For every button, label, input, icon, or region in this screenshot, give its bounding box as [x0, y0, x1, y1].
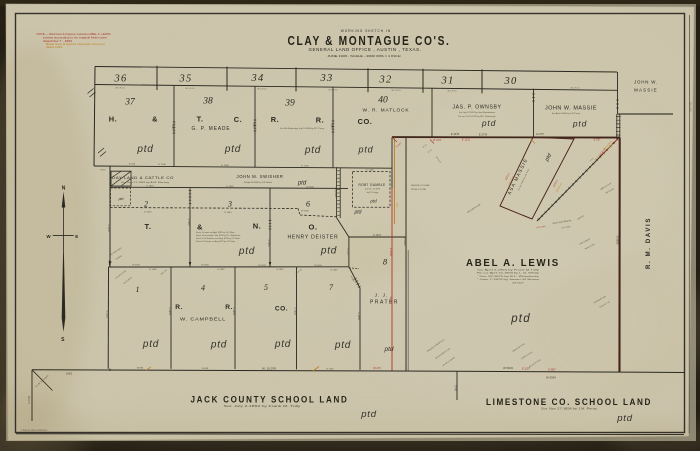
- svg-text:E 1543: E 1543: [373, 234, 381, 237]
- svg-text:E. 1906: E. 1906: [158, 164, 166, 166]
- svg-text:” June 7-1879 by James W Brow: ” June 7-1879 by James W Brown: [477, 278, 540, 281]
- svg-text:H.: H.: [109, 114, 117, 123]
- svg-text:E. 906: E. 906: [129, 164, 136, 166]
- svg-text:FROM CO LINE: FROM CO LINE: [411, 189, 427, 191]
- svg-text:E 1492: E 1492: [277, 269, 285, 271]
- svg-text:W 893: W 893: [202, 368, 209, 370]
- svg-text:Sur Dec 27-1879: Sur Dec 27-1879: [365, 189, 381, 191]
- svg-text:T.: T.: [197, 114, 204, 123]
- svg-text:W. 1 9 0 0: W. 1 9 0 0: [570, 88, 580, 90]
- svg-text:1212: 1212: [396, 203, 398, 209]
- svg-text:34: 34: [251, 73, 265, 84]
- svg-text:33: 33: [320, 73, 334, 84]
- svg-text:CO.: CO.: [358, 117, 373, 126]
- svg-text:W.74: W.74: [101, 170, 107, 172]
- svg-text:” Dec 29-1875 by R.L. Wheeloc: ” Dec 29-1875 by R.L. Wheelocke: [477, 276, 540, 278]
- svg-text:W 1500: W 1500: [306, 187, 314, 189]
- svg-text:S 1300: S 1300: [267, 240, 269, 248]
- svg-text:E 1300: E 1300: [225, 212, 233, 214]
- svg-text:ptd: ptd: [510, 313, 531, 325]
- svg-text:N 5550: N 5550: [403, 236, 407, 245]
- svg-text:T.: T.: [145, 222, 152, 231]
- svg-text:W 5003: W 5003: [503, 366, 513, 370]
- svg-text:E 1435: E 1435: [327, 369, 335, 371]
- svg-text:E 1492: E 1492: [218, 269, 226, 271]
- svg-text:3: 3: [227, 199, 232, 208]
- svg-text:E 1300: E 1300: [147, 186, 155, 188]
- svg-text:E 1212: E 1212: [462, 138, 471, 142]
- svg-text:5: 5: [264, 283, 268, 292]
- svg-text:Sur April 4-1860 by J.M. Penry: Sur April 4-1860 by J.M. Penry: [552, 112, 581, 115]
- svg-text:35: 35: [179, 74, 193, 85]
- svg-text:W 473: W 473: [373, 366, 381, 370]
- svg-text:Sur April 5-1853 by Frank M Tu: Sur April 5-1853 by Frank M Tully: [477, 268, 541, 271]
- svg-text:W 1493: W 1493: [258, 265, 266, 267]
- svg-text:W 893: W 893: [137, 368, 144, 370]
- svg-text:Sects 1-6 were sur April 1887: Sects 1-6 were sur April 1887 by L.B. Wh…: [196, 231, 235, 234]
- svg-text:E 4478: E 4478: [451, 132, 460, 136]
- svg-text:ABEL A. LEWIS: ABEL A. LEWIS: [466, 258, 560, 269]
- svg-text:N 2655: N 2655: [105, 310, 108, 318]
- svg-text:R.: R.: [225, 304, 233, 311]
- svg-text:NOTE — Red lines & Figures rep: NOTE — Red lines & Figures represent ABE…: [37, 32, 111, 36]
- svg-text:E 937: E 937: [594, 138, 601, 142]
- svg-text:39: 39: [284, 99, 295, 109]
- svg-text:W. 1 9 0 0: W. 1 9 0 0: [391, 90, 401, 92]
- svg-text:W. CAMPBELL: W. CAMPBELL: [180, 316, 226, 321]
- svg-text:N.: N.: [253, 222, 262, 231]
- svg-text:ptd: ptd: [369, 199, 377, 204]
- svg-text:W 1500: W 1500: [132, 264, 140, 266]
- svg-text:ROBT GAMBLE: ROBT GAMBLE: [359, 183, 386, 187]
- svg-text:R. M. DAVIS: R. M. DAVIS: [645, 217, 652, 269]
- svg-text:ptd: ptd: [572, 119, 587, 129]
- svg-text:W 1300: W 1300: [301, 211, 309, 213]
- svg-text:W. 1 9 0 0: W. 1 9 0 0: [257, 89, 267, 91]
- svg-text:W. R. MATLOCK: W. R. MATLOCK: [363, 108, 410, 113]
- svg-text:S 2655: S 2655: [168, 307, 171, 315]
- svg-text:JOHN M. SWISHER: JOHN M. SWISHER: [237, 174, 284, 179]
- svg-text:Sur 4th Wednesday July 29-1886: Sur 4th Wednesday July 29-1886 by W.T. P…: [280, 127, 325, 130]
- svg-text:ptd: ptd: [320, 246, 337, 257]
- svg-text:Sur. July 2-1860 by Frank M. T: Sur. July 2-1860 by Frank M. Tully: [224, 404, 302, 408]
- svg-text:ptd: ptd: [360, 409, 377, 420]
- svg-text:S 745: S 745: [454, 385, 456, 392]
- svg-text:ptd: ptd: [481, 118, 496, 128]
- svg-text:dated 1933.: dated 1933.: [46, 45, 63, 49]
- svg-text:S 5550: S 5550: [616, 236, 620, 245]
- svg-text:E 2778: E 2778: [536, 134, 544, 136]
- svg-text:ptd: ptd: [297, 181, 307, 187]
- svg-text:Sects 5,6 Deister sur Aug 1879: Sects 5,6 Deister sur Aug 1879 by J.P. E…: [196, 240, 236, 243]
- svg-text:by P.S. Hagy: by P.S. Hagy: [367, 192, 378, 194]
- svg-text:ptd: ptd: [118, 197, 124, 201]
- svg-text:JOHN W.: JOHN W.: [634, 80, 658, 85]
- svg-text:ptd: ptd: [304, 145, 321, 156]
- svg-text:E 2778: E 2778: [479, 132, 488, 136]
- svg-text:Sects 1-6 november July 1879 b: Sects 1-6 november July 1879 by R.L. Whe…: [196, 234, 241, 237]
- svg-text:1415: 1415: [66, 371, 73, 375]
- svg-text:J. Barnes Giles Draftsman: J. Barnes Giles Draftsman: [21, 429, 49, 432]
- svg-text:31: 31: [441, 76, 455, 87]
- svg-text:J. J.: J. J.: [375, 293, 388, 298]
- svg-text:JUNE 1933 - SCALE - 2000 VRS =: JUNE 1933 - SCALE - 2000 VRS = 1 INCH: [328, 54, 401, 58]
- svg-text:C.: C.: [234, 115, 242, 124]
- svg-text:Sur July 21-1881 by A.M. Macke: Sur July 21-1881 by A.M. Mackey: [121, 181, 169, 184]
- svg-text:38: 38: [202, 97, 213, 107]
- svg-text:JACK COUNTY SCHOOL LAND: JACK COUNTY SCHOOL LAND: [191, 395, 349, 406]
- svg-text:&: &: [197, 223, 203, 232]
- svg-text:W. 1 9 0 0: W. 1 9 0 0: [447, 91, 457, 93]
- svg-text:18 x 31½: 18 x 31½: [689, 102, 693, 113]
- svg-text:CLAY & MONTAGUE CO'S.: CLAY & MONTAGUE CO'S.: [288, 34, 451, 48]
- svg-text:MASSIE: MASSIE: [634, 88, 658, 93]
- svg-text:CO.: CO.: [275, 305, 288, 312]
- svg-text:R.: R.: [175, 304, 183, 311]
- svg-text:Re-sur April 10-1869 by L. B.: Re-sur April 10-1869 by L. B. Whitty: [477, 272, 541, 275]
- svg-text:ptd: ptd: [616, 413, 633, 424]
- svg-text:W 453: W 453: [389, 297, 391, 304]
- svg-text:S 2740: S 2740: [27, 395, 31, 404]
- svg-text:S 1300: S 1300: [107, 224, 110, 232]
- svg-text:ptd: ptd: [238, 246, 255, 257]
- svg-text:4: 4: [201, 284, 205, 293]
- svg-text:30: 30: [504, 76, 518, 87]
- svg-text:E 1493: E 1493: [331, 269, 339, 271]
- svg-text:E. 1900: E. 1900: [221, 165, 229, 167]
- svg-text:GENERAL LAND OFFICE , AUSTIN ,: GENERAL LAND OFFICE , AUSTIN , TEXAS.: [309, 47, 422, 52]
- svg-text:W. 1 9 0 0: W. 1 9 0 0: [185, 88, 195, 90]
- svg-text:32: 32: [379, 75, 393, 86]
- svg-text:ptd: ptd: [334, 340, 351, 351]
- svg-text:2655: 2655: [171, 125, 173, 131]
- svg-text:ptd: ptd: [354, 210, 362, 216]
- svg-text:S 1177: S 1177: [346, 248, 348, 256]
- svg-text:E 2013: E 2013: [145, 212, 153, 214]
- svg-text:ptd: ptd: [210, 340, 227, 351]
- svg-text:2: 2: [144, 199, 148, 208]
- svg-text:Sur. Nov 27-1854 by J.M. Penry: Sur. Nov 27-1854 by J.M. Penry: [541, 407, 598, 411]
- svg-text:S 2655: S 2655: [357, 312, 360, 320]
- svg-text:J. SWISHER: J. SWISHER: [334, 187, 336, 198]
- svg-text:O.: O.: [308, 222, 317, 231]
- svg-text:E 1493: E 1493: [150, 269, 158, 271]
- svg-text:2655: 2655: [252, 123, 254, 129]
- svg-text:R.: R.: [316, 116, 324, 125]
- svg-text:E: E: [75, 234, 78, 239]
- svg-text:R.: R.: [271, 115, 279, 124]
- svg-text:JAS. P. OWNSBY: JAS. P. OWNSBY: [453, 105, 502, 111]
- svg-text:PRATER: PRATER: [370, 300, 399, 306]
- svg-text:37: 37: [124, 98, 136, 108]
- svg-text:W. 1 9 0 0: W. 1 9 0 0: [115, 87, 125, 89]
- svg-text:6: 6: [306, 199, 310, 208]
- svg-text:E 1157: E 1157: [522, 366, 531, 370]
- svg-text:W 1500: W 1500: [314, 265, 322, 267]
- svg-text:36: 36: [114, 74, 128, 85]
- svg-text:E. 1056: E. 1056: [366, 169, 374, 171]
- svg-text:DAY LAND & CATTLE CO: DAY LAND & CATTLE CO: [112, 176, 174, 180]
- svg-text:ptd: ptd: [136, 144, 153, 155]
- svg-text:S 1300: S 1300: [187, 219, 189, 227]
- svg-text:N: N: [62, 186, 66, 192]
- svg-text:Sur July 27-1852 by Geo Winter: Sur July 27-1852 by Geo Winterbottom: [459, 111, 495, 114]
- svg-text:Sects 2,3 & Swisher resur Aug: Sects 2,3 & Swisher resur Aug 1879 by J.…: [196, 237, 241, 240]
- svg-text:ptd: ptd: [358, 145, 374, 155]
- svg-text:1: 1: [136, 285, 140, 294]
- svg-text:S 2655: S 2655: [294, 307, 297, 315]
- svg-text:W. 10,078: W. 10,078: [262, 366, 276, 370]
- svg-text:ptd: ptd: [142, 339, 159, 350]
- svg-text:E 5043: E 5043: [389, 248, 392, 257]
- svg-text:G. P. MEADE: G. P. MEADE: [192, 126, 231, 132]
- svg-text:KEELER CO ROAD: KEELER CO ROAD: [411, 184, 430, 187]
- svg-text:&: &: [152, 115, 158, 124]
- svg-text:WORKING SKETCH IN: WORKING SKETCH IN: [341, 29, 391, 33]
- svg-text:B/S m/bd 8: B/S m/bd 8: [513, 282, 525, 284]
- svg-text:W 1373: W 1373: [433, 140, 442, 142]
- svg-text:JOHN W. MASSIE: JOHN W. MASSIE: [545, 106, 597, 112]
- svg-text:E 3967: E 3967: [548, 370, 556, 372]
- svg-text:40: 40: [378, 96, 388, 106]
- svg-text:E. 1920: E. 1920: [301, 166, 309, 168]
- svg-text:ptd: ptd: [224, 144, 241, 155]
- svg-text:HENRY DEISTER: HENRY DEISTER: [288, 234, 339, 240]
- svg-text:W 1500: W 1500: [201, 265, 209, 267]
- svg-text:2655: 2655: [330, 124, 332, 130]
- svg-text:ptd: ptd: [274, 339, 291, 350]
- svg-text:LIMESTONE CO. SCHOOL LAND: LIMESTONE CO. SCHOOL LAND: [486, 397, 652, 407]
- svg-text:Pat April 8-1858 by G.W. Mathi: Pat April 8-1858 by G.W. Mathis: [244, 181, 272, 184]
- svg-text:E 1300: E 1300: [227, 186, 235, 188]
- svg-text:W 9364: W 9364: [546, 375, 556, 379]
